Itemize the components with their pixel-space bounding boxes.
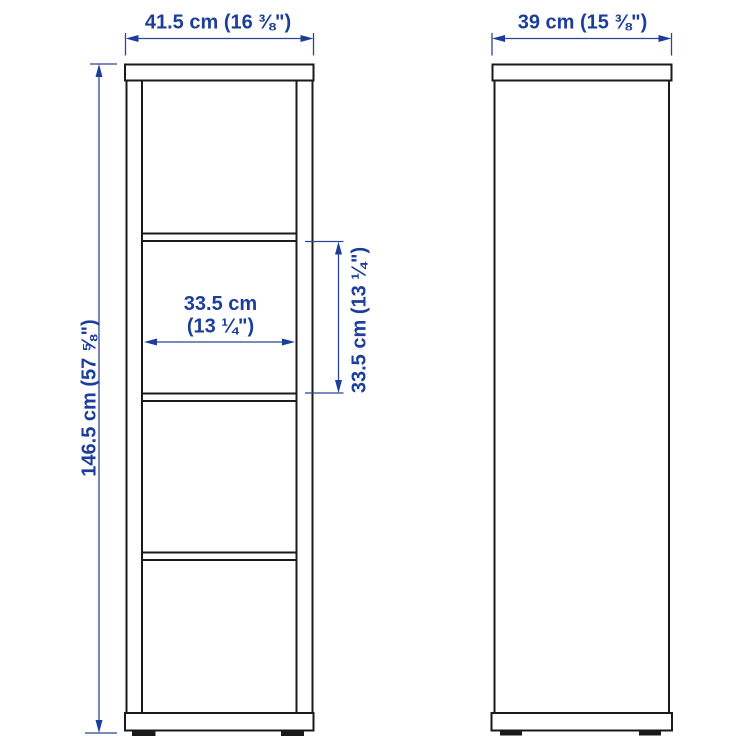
svg-text:33.5 cm (13 ¼"): 33.5 cm (13 ¼") (349, 247, 371, 393)
svg-text:(13 ¼"): (13 ¼") (187, 316, 254, 338)
svg-text:41.5 cm (16 ⅜"): 41.5 cm (16 ⅜") (145, 12, 291, 34)
svg-text:39 cm (15 ⅜"): 39 cm (15 ⅜") (518, 12, 648, 34)
svg-text:146.5 cm (57 ⅝"): 146.5 cm (57 ⅝") (79, 319, 101, 476)
svg-text:33.5 cm: 33.5 cm (184, 293, 257, 315)
